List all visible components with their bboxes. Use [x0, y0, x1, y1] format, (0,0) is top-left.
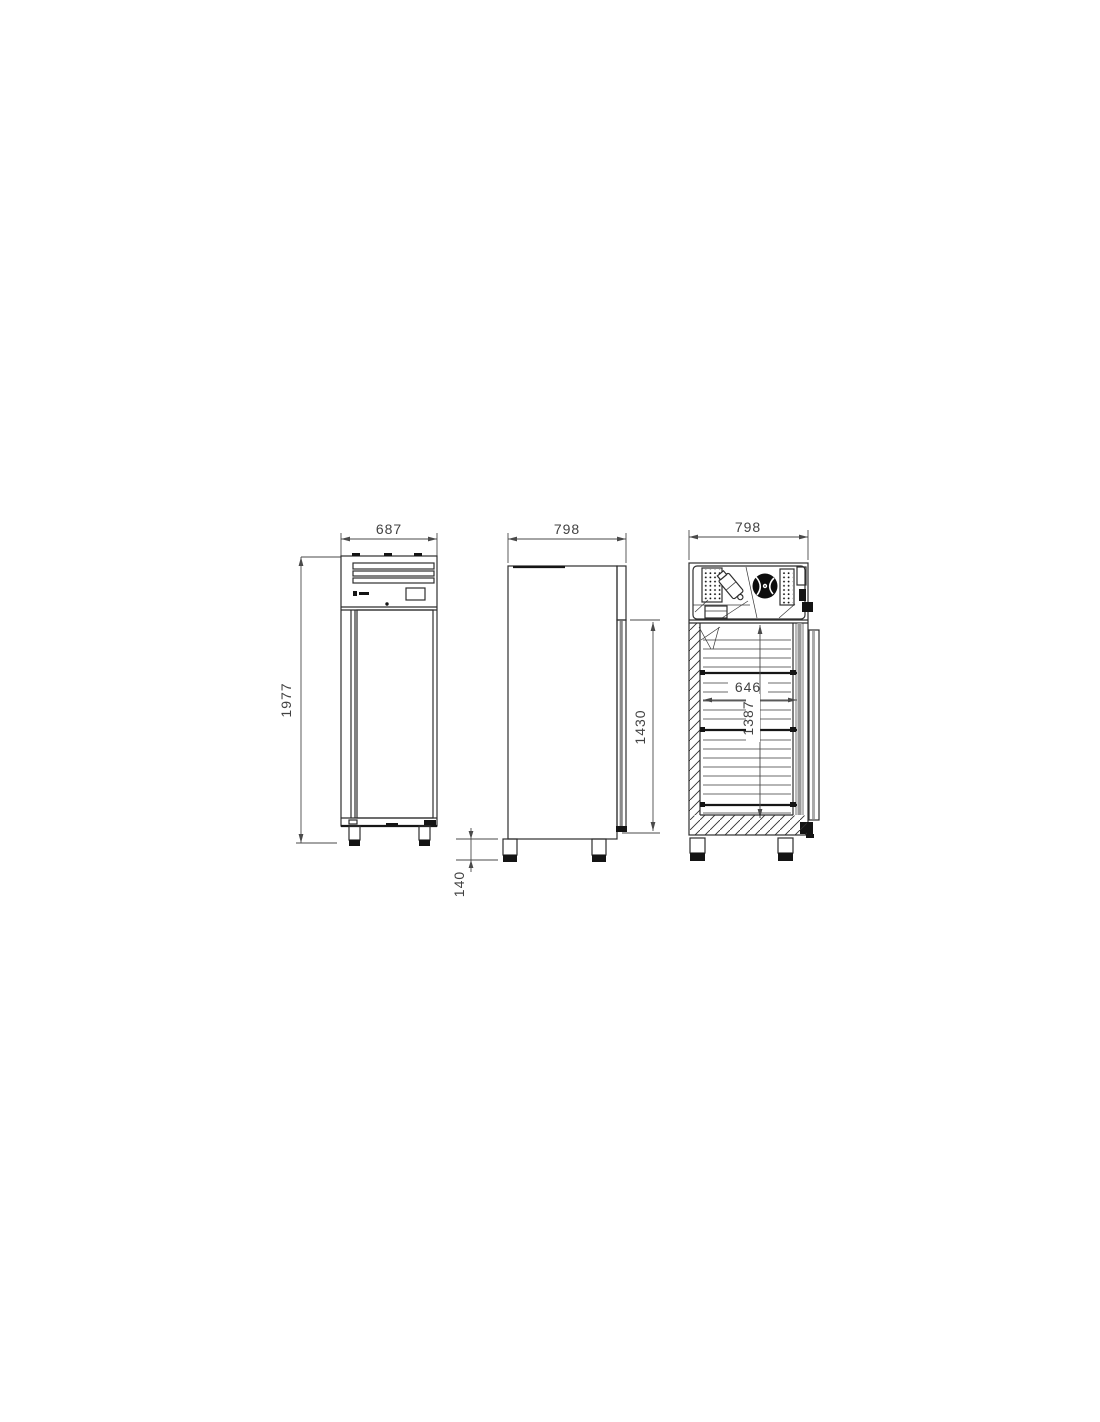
- door-lock: [424, 820, 436, 825]
- section-depth-label: 798: [735, 519, 761, 535]
- side-door-edge: [616, 566, 627, 832]
- panel-button: [385, 602, 388, 605]
- side-feet: [503, 839, 606, 862]
- front-height-dimension: 1977: [278, 557, 341, 843]
- door-height-label: 1430: [632, 709, 648, 744]
- interior-height-dimension: 1387: [740, 625, 762, 818]
- fan: [753, 574, 778, 599]
- door-height-dimension: 1430: [622, 620, 660, 833]
- interior-height-label: 1387: [740, 700, 756, 735]
- side-depth-dimension: 798: [508, 521, 626, 563]
- technical-drawing: 687 1977: [0, 0, 1100, 1422]
- vent-grille: [353, 563, 434, 583]
- front-feet: [349, 826, 430, 846]
- feet-height-dimension: 140: [451, 828, 498, 897]
- insulated-wall: [689, 623, 700, 815]
- front-view: 687 1977: [278, 521, 437, 846]
- section-feet: [690, 838, 793, 861]
- machinery-compartment: [693, 566, 806, 619]
- front-width-label: 687: [376, 521, 402, 537]
- section-depth-dimension: 798: [689, 519, 808, 560]
- drawing-canvas: 687 1977: [0, 0, 1100, 1422]
- condenser: [702, 568, 722, 602]
- feet-height-label: 140: [451, 871, 467, 897]
- controller-display: [406, 588, 425, 600]
- front-width-dimension: 687: [341, 521, 437, 556]
- front-height-label: 1977: [278, 682, 294, 717]
- top-hinge: [802, 602, 813, 612]
- insulated-base: [690, 815, 807, 835]
- interior-width-label: 646: [735, 679, 761, 695]
- door-section: [793, 602, 819, 838]
- side-cabinet-body: [508, 566, 627, 839]
- front-door: [341, 610, 437, 826]
- section-view: 798: [689, 519, 819, 861]
- side-depth-label: 798: [554, 521, 580, 537]
- drip-tray: [705, 606, 727, 618]
- brand-logo-mark: [353, 591, 369, 596]
- evaporator-coil: [780, 569, 794, 605]
- side-view: 798 1430: [451, 521, 660, 897]
